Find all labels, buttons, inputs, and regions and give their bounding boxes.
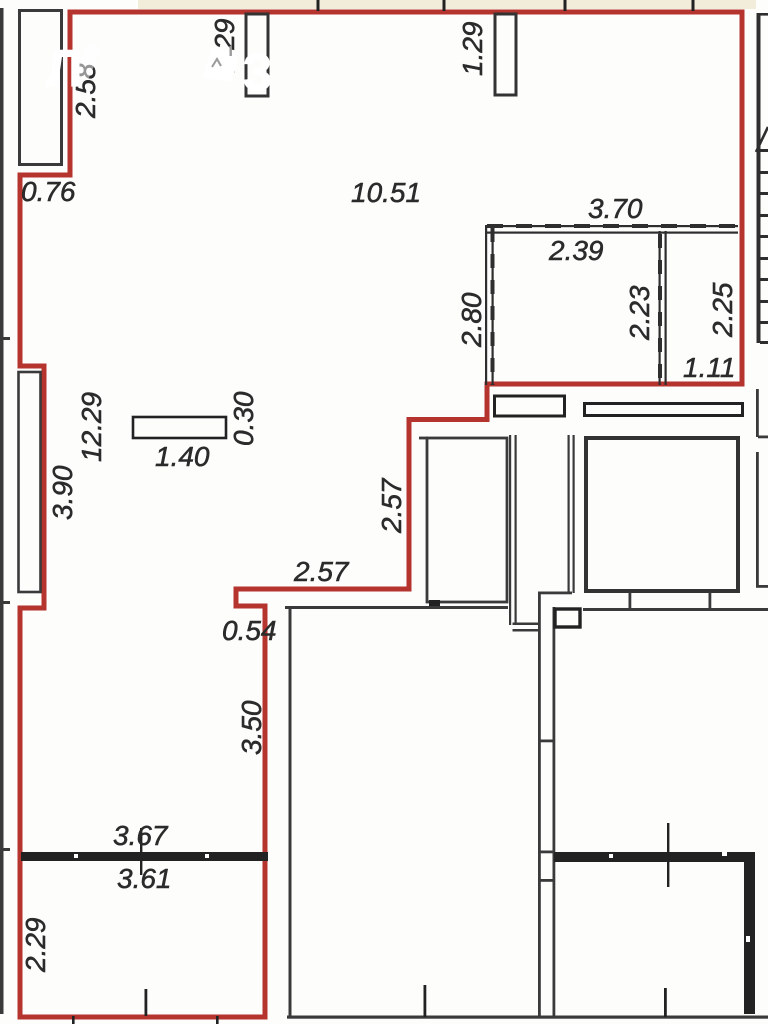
svg-text:3.70: 3.70 (588, 193, 643, 224)
svg-text:2.57: 2.57 (376, 477, 407, 534)
svg-text:10.51: 10.51 (351, 177, 421, 208)
svg-text:2.25: 2.25 (707, 282, 738, 338)
svg-text:0.54: 0.54 (222, 615, 277, 646)
svg-text:3.90: 3.90 (47, 465, 78, 520)
svg-text:12.29: 12.29 (76, 392, 107, 462)
svg-text:2.57: 2.57 (293, 556, 350, 587)
svg-text:1.29: 1.29 (457, 22, 488, 77)
svg-text:2.80: 2.80 (456, 292, 487, 348)
svg-text:3.50: 3.50 (236, 700, 267, 755)
svg-text:2.29: 2.29 (20, 918, 51, 974)
svg-text:0.30: 0.30 (228, 391, 259, 446)
svg-text:3.67: 3.67 (113, 820, 169, 851)
svg-text:2.39: 2.39 (548, 235, 604, 266)
svg-text:1.11: 1.11 (683, 352, 735, 383)
svg-text:2.23: 2.23 (624, 285, 655, 341)
svg-text:1.40: 1.40 (155, 441, 210, 472)
svg-text:3: 3 (243, 44, 272, 102)
svg-text:0.76: 0.76 (21, 176, 76, 207)
svg-text:3.61: 3.61 (117, 863, 172, 894)
